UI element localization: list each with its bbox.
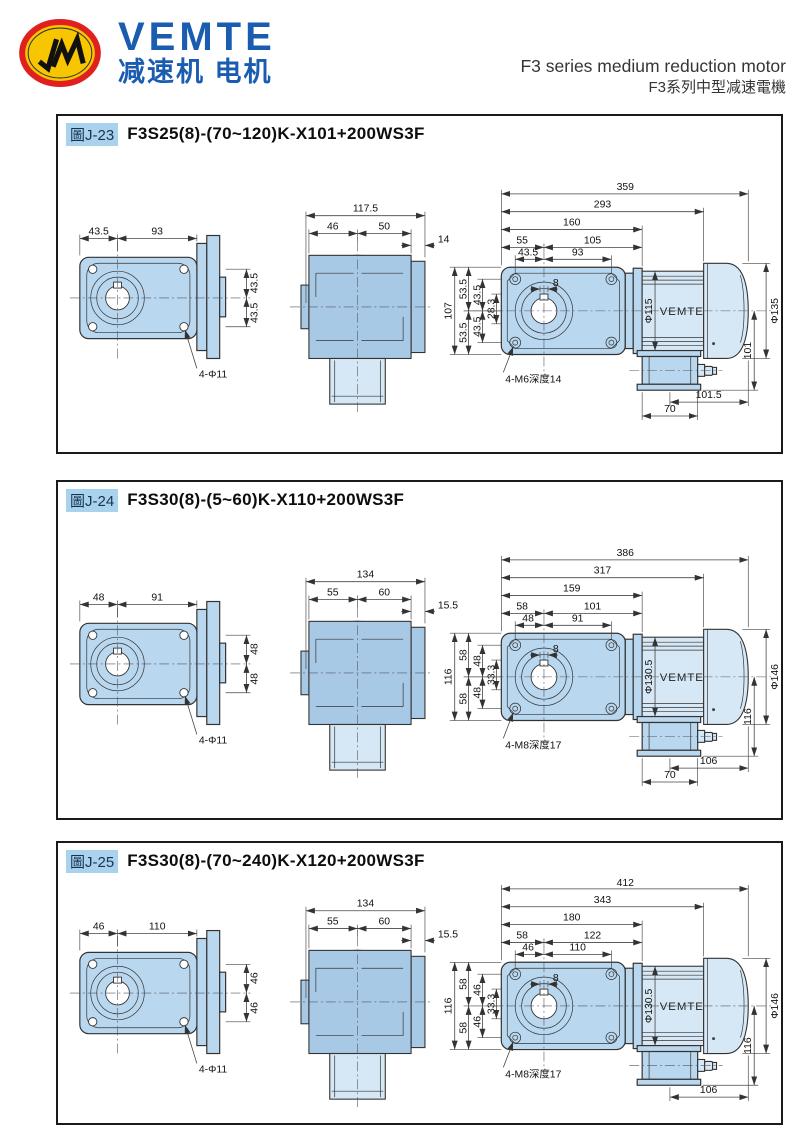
figure-tag: 圖J-24 [66, 489, 118, 512]
model-title: F3S30(8)-(70~240)K-X120+200WS3F [127, 851, 425, 871]
technical-drawing: 46 110 46 46 4-Φ11 [60, 874, 780, 1118]
motor-brand-label: VEMTE [659, 306, 703, 318]
dim-label: 58 [458, 693, 469, 705]
dim-label: 43.5 [517, 247, 537, 258]
tap-label: 4-M6深度14 [505, 372, 561, 385]
figure-panel-j23: 圖J-23 F3S25(8)-(70~120)K-X101+200WS3F 43… [56, 114, 783, 454]
dim-label: 117.5 [352, 204, 377, 215]
dim-label: 55 [326, 917, 338, 928]
dim-label: 46 [326, 222, 338, 233]
series-title-zh: F3系列中型减速電機 [520, 78, 786, 98]
dim-label: 91 [571, 613, 583, 624]
dim-label: 58 [458, 978, 469, 990]
dim-label: 48 [249, 673, 260, 685]
brand-name: VEMTE [118, 17, 276, 57]
dim-label: 101 [743, 342, 754, 360]
page-header: VEMTE 减速机 电机 F3 series medium reduction … [0, 0, 800, 112]
figure-panel-j24: 圖J-24 F3S30(8)-(5~60)K-X110+200WS3F 48 9… [56, 480, 783, 820]
dim-label: 46 [249, 972, 260, 984]
dim-label: 53.5 [458, 322, 469, 342]
motor-dia-label: Φ130.5 [644, 989, 655, 1024]
dim-label: 28.3 [486, 299, 497, 319]
holes-label: 4-Φ11 [198, 735, 227, 746]
panel-title-row: 圖J-25 F3S30(8)-(70~240)K-X120+200WS3F [58, 843, 781, 874]
dim-label: 46 [472, 984, 483, 996]
motor-dia-label: Φ115 [644, 298, 655, 323]
technical-drawing: 43.5 93 43.5 43.5 4-Φ11 [60, 147, 780, 445]
dim-label: 159 [563, 584, 581, 595]
cap-dia-label: Φ146 [770, 993, 780, 1019]
gearbox-front-view: 43.5 93 43.5 43.5 4-Φ11 [69, 227, 259, 381]
dim-label: 58 [516, 930, 528, 941]
dim-label: 293 [593, 200, 611, 211]
dim-label: 110 [148, 922, 165, 933]
dim-label: 53.5 [458, 279, 469, 299]
dim-label: 359 [616, 182, 634, 193]
brand-subtitle: 减速机 电机 [118, 57, 276, 88]
dim-label: 101.5 [695, 390, 721, 401]
gearbox-side-view: 134 55 60 15.5 [290, 899, 458, 1107]
dim-label: 60 [378, 588, 390, 599]
dim-label: 46 [522, 942, 534, 953]
dim-label: 48 [249, 643, 260, 655]
model-title: F3S25(8)-(70~120)K-X101+200WS3F [127, 124, 425, 144]
dim-label: 110 [569, 942, 586, 953]
dim-label: 60 [378, 917, 390, 928]
dim-label: 43.5 [249, 273, 260, 293]
dim-label: 46 [472, 1016, 483, 1028]
gearbox-side-view: 134 55 60 15.5 [290, 570, 458, 778]
dim-label: 93 [151, 227, 163, 238]
panel-title-row: 圖J-23 F3S25(8)-(70~120)K-X101+200WS3F [58, 116, 781, 147]
dim-label: 134 [356, 899, 374, 910]
dim-label: 105 [583, 235, 601, 246]
dim-label: 50 [378, 222, 390, 233]
dim-label: 33.3 [486, 994, 497, 1014]
dim-label: 43.5 [88, 227, 108, 238]
motor-brand-label: VEMTE [659, 1001, 703, 1013]
dim-label: 8 [552, 973, 558, 984]
dim-label: 58 [516, 601, 528, 612]
section-view: 8 4-M8深度17 Φ130.5 VEMTE 386 317 159 58 [488, 548, 780, 786]
dim-label: 15.5 [437, 600, 457, 611]
motor-dia-label: Φ130.5 [644, 659, 655, 694]
tap-label: 4-M8深度17 [505, 738, 561, 751]
dim-label: 70 [664, 770, 676, 781]
dim-label: 43.5 [472, 285, 483, 305]
dim-label: 116 [443, 997, 454, 1014]
dim-label: 116 [743, 1037, 754, 1054]
cap-dia-label: Φ146 [770, 664, 780, 690]
model-title: F3S30(8)-(5~60)K-X110+200WS3F [127, 490, 404, 510]
section-view: 8 4-M6深度14 Φ115 VEMTE 359 293 160 55 [488, 182, 780, 420]
dim-label: 116 [443, 668, 454, 685]
dim-label: 106 [699, 756, 717, 767]
dim-label: 122 [583, 930, 601, 941]
dim-label: 14 [437, 234, 449, 245]
section-view: 8 4-M8深度17 Φ130.5 VEMTE 412 343 180 58 [488, 878, 780, 1101]
gearbox-side-view: 117.5 46 50 14 [290, 204, 450, 412]
dim-label: 43.5 [472, 316, 483, 336]
dim-label: 15.5 [437, 929, 457, 940]
technical-drawing: 48 91 48 48 4-Φ11 [60, 513, 780, 811]
dim-label: 43.5 [249, 303, 260, 323]
dim-label: 48 [522, 613, 534, 624]
dim-label: 48 [92, 593, 104, 604]
dim-label: 8 [552, 644, 558, 655]
cap-dia-label: Φ135 [770, 298, 780, 324]
tap-label: 4-M8深度17 [505, 1067, 561, 1080]
dim-label: 134 [356, 570, 374, 581]
dim-label: 386 [616, 548, 634, 559]
dim-label: 46 [249, 1002, 260, 1014]
dim-label: 48 [472, 655, 483, 667]
dim-label: 91 [151, 593, 163, 604]
motor-brand-label: VEMTE [659, 672, 703, 684]
dim-label: 46 [92, 922, 104, 933]
dim-label: 180 [563, 913, 581, 924]
figure-tag: 圖J-25 [66, 850, 118, 873]
dim-label: 33.3 [486, 665, 497, 685]
series-title-en: F3 series medium reduction motor [520, 56, 786, 78]
dim-label: 160 [563, 218, 581, 229]
dim-label: 412 [616, 878, 634, 889]
catalog-page: VEMTE 减速机 电机 F3 series medium reduction … [0, 0, 800, 1133]
gearbox-front-view: 48 91 48 48 4-Φ11 [69, 593, 259, 747]
panel-title-row: 圖J-24 F3S30(8)-(5~60)K-X110+200WS3F [58, 482, 781, 513]
dim-label: 55 [326, 588, 338, 599]
vemte-logo-emblem [12, 10, 108, 96]
dim-label: 58 [458, 649, 469, 661]
dim-label: 107 [443, 302, 454, 320]
dim-label: 48 [472, 687, 483, 699]
dim-label: 58 [458, 1022, 469, 1034]
dim-label: 101 [583, 601, 601, 612]
holes-label: 4-Φ11 [198, 1064, 227, 1075]
series-titles: F3 series medium reduction motor F3系列中型减… [520, 56, 786, 97]
dim-label: 343 [593, 895, 611, 906]
dim-label: 70 [664, 404, 676, 415]
gearbox-front-view: 46 110 46 46 4-Φ11 [69, 922, 259, 1076]
dim-label: 106 [699, 1085, 717, 1096]
vemte-logo: VEMTE 减速机 电机 [12, 10, 276, 96]
dim-label: 8 [552, 278, 558, 289]
dim-label: 317 [593, 566, 611, 577]
dim-label: 55 [516, 235, 528, 246]
figure-tag: 圖J-23 [66, 123, 118, 146]
figure-panel-j25: 圖J-25 F3S30(8)-(70~240)K-X120+200WS3F 46… [56, 841, 783, 1125]
dim-label: 93 [571, 247, 583, 258]
dim-label: 116 [743, 708, 754, 725]
holes-label: 4-Φ11 [198, 369, 227, 380]
